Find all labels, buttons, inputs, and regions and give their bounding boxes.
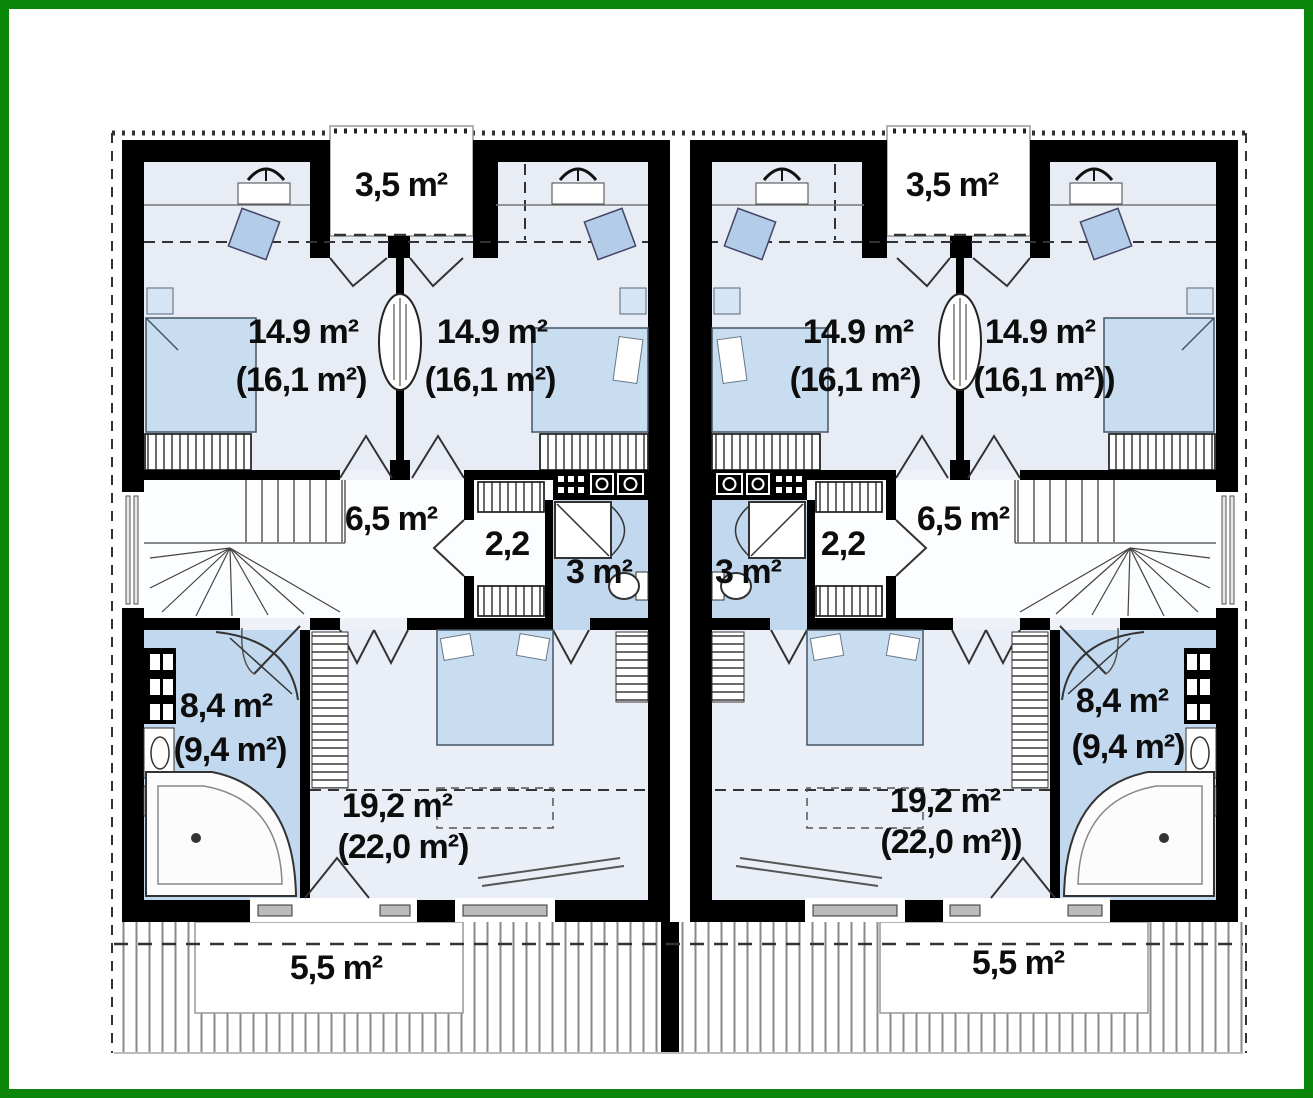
bedroom-attic-area-label: (16,1 m²)) <box>973 361 1114 399</box>
wardrobe-area-label: 2,2 <box>485 525 529 563</box>
main-bedroom-area-label: 19,2 m² <box>890 782 1001 820</box>
bedroom-area-label: 14.9 m² <box>985 313 1096 351</box>
floor-plan-page: 3,5 m² 14.9 m² (16,1 m²) 14.9 m² (16,1 m… <box>0 0 1313 1098</box>
wardrobe-area-label: 2,2 <box>821 525 865 563</box>
balcony-area-label: 3,5 m² <box>355 166 448 204</box>
bedroom-attic-area-label: (16,1 m²) <box>236 361 367 399</box>
small-bathroom-area-label: 3 m² <box>566 553 633 591</box>
bathroom-attic-area-label: (9,4 m²) <box>174 731 287 769</box>
main-bedroom-attic-area-label: (22,0 m²)) <box>880 823 1021 861</box>
bedroom-attic-area-label: (16,1 m²) <box>425 361 556 399</box>
main-bedroom-attic-area-label: (22,0 m²) <box>338 828 469 866</box>
party-wall-deck-divider <box>661 922 679 1053</box>
terrace-area-label: 5,5 m² <box>290 949 383 987</box>
small-bathroom-area-label: 3 m² <box>715 553 782 591</box>
bathroom-attic-area-label: (9,4 m²) <box>1072 728 1185 766</box>
bedroom-attic-area-label: (16,1 m²) <box>790 361 921 399</box>
bedroom-area-label: 14.9 m² <box>803 313 914 351</box>
terrace-area-label: 5,5 m² <box>972 944 1065 982</box>
bedroom-area-label: 14.9 m² <box>437 313 548 351</box>
hall-area-label: 6,5 m² <box>917 500 1010 538</box>
hall-area-label: 6,5 m² <box>345 500 438 538</box>
balcony-area-label: 3,5 m² <box>906 166 999 204</box>
bedroom-area-label: 14.9 m² <box>248 313 359 351</box>
bathroom-area-label: 8,4 m² <box>180 687 273 725</box>
main-bedroom-area-label: 19,2 m² <box>342 787 453 825</box>
floor-plan-drawing: 3,5 m² 14.9 m² (16,1 m²) 14.9 m² (16,1 m… <box>0 0 1313 1098</box>
bathroom-area-label: 8,4 m² <box>1076 682 1169 720</box>
